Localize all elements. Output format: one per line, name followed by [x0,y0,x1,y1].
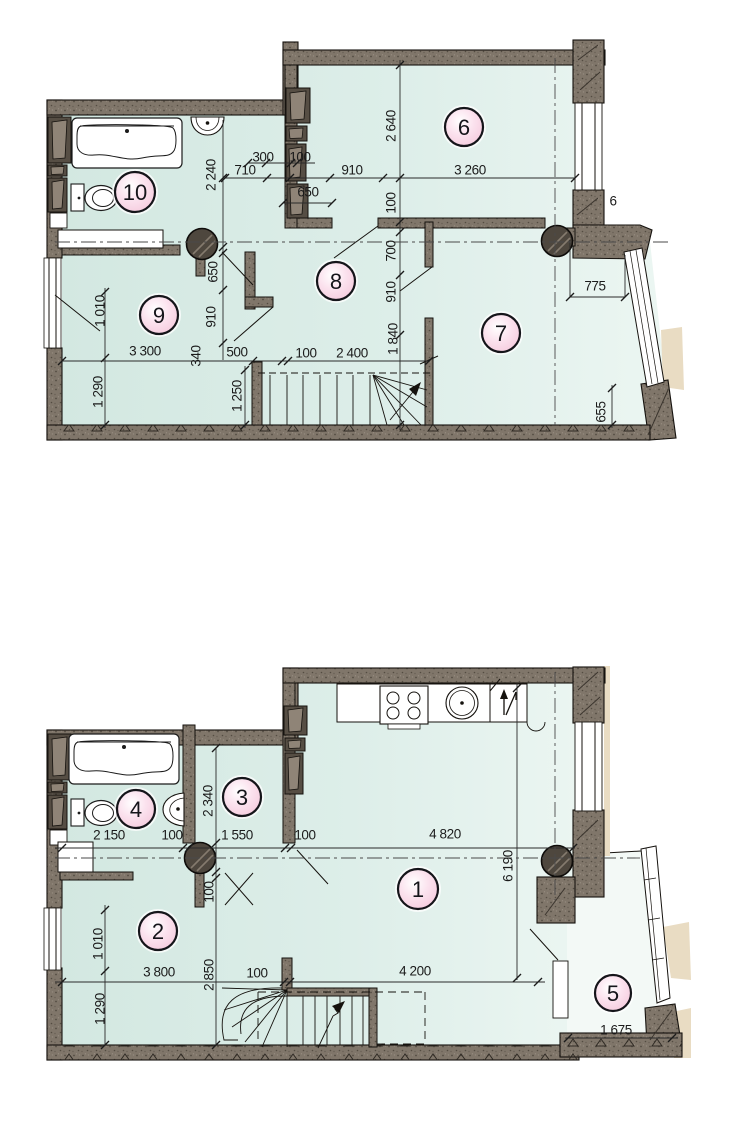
dim-label: 100 [294,828,315,843]
dim-label: 2 240 [204,159,219,191]
room-number: 10 [123,180,147,205]
room-badge-7: 7 [479,311,523,355]
room-number: 5 [607,981,619,1006]
bottom-wall-hatch [47,425,650,440]
room-badge-2: 2 [136,909,180,953]
dim-label: 700 [384,240,399,261]
dim-label: 1 550 [221,828,253,843]
room-badge-5: 5 [592,972,634,1014]
dim-label: 1 290 [93,993,108,1025]
room-badge-4: 4 [114,787,158,831]
room-badge-10: 10 [112,169,158,215]
dim-label: 775 [584,279,605,294]
room-number: 3 [236,785,248,810]
dim-label: 4 820 [429,827,461,842]
dim-label: 4 200 [399,964,431,979]
window-left-lower [44,908,61,970]
stove-icon [380,686,428,729]
plan-upper: 2 2403001007109103 2606502 6401007009101… [44,40,684,440]
dim-label: 2 640 [384,110,399,142]
window-right-upper [575,103,602,190]
dim-label: 1 250 [230,380,245,412]
dim-label: 1 290 [91,376,106,408]
room-badge-8: 8 [314,259,358,303]
plan-lower: 2 1501001 5501004 8202 3406 1901001 0101… [44,666,691,1060]
dim-label: 1 010 [93,295,108,327]
dim-label: 100 [161,828,182,843]
dim-label: 910 [384,281,399,302]
room-number: 2 [152,919,164,944]
dim-label: 710 [234,163,255,178]
dim-label: 100 [202,881,217,902]
room-number: 1 [412,877,424,902]
dim-label: 2 150 [93,828,125,843]
dim-label: 100 [384,192,399,213]
balcony-wall-hatch [560,1036,682,1054]
room-badge-1: 1 [395,866,441,912]
dim-label: 910 [204,306,219,327]
floor-plan-drawing: 2 2403001007109103 2606502 6401007009101… [0,0,735,1135]
bottom-wall-hatch-lower [47,1045,579,1060]
kitchen-sink-icon [446,687,478,719]
room-number: 7 [495,321,507,346]
dim-label: 1 675 [600,1023,632,1038]
room-badge-6: 6 [442,105,486,149]
dim-label: 910 [341,163,362,178]
room-badge-9: 9 [137,293,181,337]
dim-label: 100 [295,346,316,361]
room-badge-3: 3 [220,775,264,819]
dim-label: 100 [289,150,310,165]
dim-label: 650 [206,261,221,282]
dim-label: 1 840 [386,323,401,355]
dim-label: 2 400 [336,346,368,361]
dim-label: 655 [594,401,609,422]
dim-label: 340 [189,345,204,366]
floor-plan-sheet: 2 2403001007109103 2606502 6401007009101… [0,0,735,1135]
room-number: 8 [330,269,342,294]
room-number: 6 [458,115,470,140]
room-number: 4 [130,797,142,822]
dim-label: 3 300 [129,344,161,359]
dim-label: 6 [609,194,616,209]
dim-label: 2 850 [202,959,217,991]
window-right-lower [575,722,602,811]
vanity-cabinet [58,230,163,248]
dim-label: 6 190 [501,850,516,882]
dim-label: 500 [226,345,247,360]
dim-label: 3 800 [143,965,175,980]
dim-label: 650 [297,185,318,200]
dim-label: 100 [246,966,267,981]
window-left-upper [44,258,61,348]
room-number: 9 [153,303,165,328]
dim-label: 2 340 [201,785,216,817]
dim-label: 3 260 [454,163,486,178]
dim-label: 1 010 [91,928,106,960]
